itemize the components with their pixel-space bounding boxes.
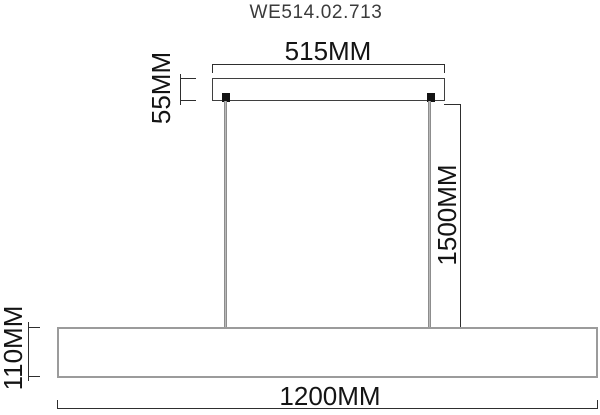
- dim-label-canopy-width: 515MM: [285, 38, 372, 64]
- technical-drawing: WE514.02.713 515MM 55MM 1500MM 110MM 120…: [0, 0, 600, 415]
- dim-tick-drop-top: [444, 104, 461, 105]
- dim-label-bar-height: 110MM: [0, 306, 26, 391]
- dim-line-canopy-width: [212, 64, 445, 73]
- dim-tick-canopy-top: [180, 78, 196, 79]
- drawing-title: WE514.02.713: [250, 2, 383, 24]
- dim-line-bar-height: [28, 322, 29, 381]
- dim-tick-canopy-bottom: [180, 100, 196, 101]
- suspension-wire-right: [428, 101, 431, 327]
- dim-tick-bar-bottom: [28, 376, 40, 377]
- dim-label-canopy-height: 55MM: [148, 52, 174, 124]
- dim-label-drop-length: 1500MM: [434, 164, 460, 265]
- light-bar: [57, 327, 598, 378]
- dim-tick-bar-top: [28, 327, 40, 328]
- dim-line-drop-length: [460, 104, 461, 327]
- dim-line-bar-width: [57, 400, 598, 409]
- suspension-wire-left: [224, 101, 227, 327]
- ceiling-canopy: [212, 78, 445, 101]
